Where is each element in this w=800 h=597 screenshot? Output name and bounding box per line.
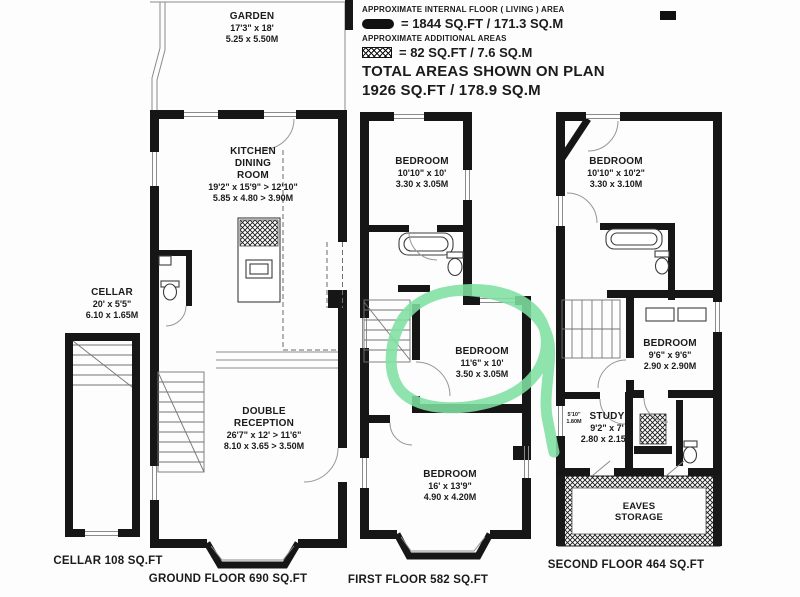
room-label-ff-bedroom-middle: BEDROOM 11'6" x 10' 3.50 x 3.05M	[412, 346, 552, 381]
legend-total-line2: 1926 SQ.FT / 178.9 SQ.M	[362, 82, 692, 101]
hatch-swatch-icon	[362, 47, 392, 58]
legend-total-line1: TOTAL AREAS SHOWN ON PLAN	[362, 63, 692, 82]
ceiling-height-marker: 5'10" 1.80M	[560, 412, 588, 426]
caption-second-floor: SECOND FLOOR 464 SQ.FT	[526, 559, 726, 571]
legend-additional-row: = 82 SQ.FT / 7.6 SQ.M	[362, 45, 692, 60]
legend-additional-label: APPROXIMATE ADDITIONAL AREAS	[362, 34, 692, 43]
room-label-garden: GARDEN 17'3" x 18' 5.25 x 5.50M	[182, 11, 322, 46]
solid-swatch-icon	[362, 19, 394, 29]
legend-internal-value: = 1844 SQ.FT / 171.3 SQ.M	[401, 16, 563, 31]
legend-additional-value: = 82 SQ.FT / 7.6 SQ.M	[399, 45, 532, 60]
room-label-eaves-storage: EAVES STORAGE	[579, 501, 699, 524]
room-label-ff-bedroom-rear: BEDROOM 10'10" x 10' 3.30 x 3.05M	[352, 156, 492, 191]
caption-first-floor: FIRST FLOOR 582 SQ.FT	[318, 574, 518, 586]
cellar-plan	[65, 333, 140, 537]
legend-internal-row: = 1844 SQ.FT / 171.3 SQ.M	[362, 16, 692, 31]
room-label-double-reception: DOUBLE RECEPTION 26'7" x 12' > 11'6" 8.1…	[189, 406, 339, 453]
legend-corner-mark	[660, 11, 676, 20]
legend: APPROXIMATE INTERNAL FLOOR ( LIVING ) AR…	[362, 5, 692, 101]
room-label-sf-bedroom-rear: BEDROOM 10'10" x 10'2" 3.30 x 3.10M	[546, 156, 686, 191]
legend-internal-label: APPROXIMATE INTERNAL FLOOR ( LIVING ) AR…	[362, 5, 692, 14]
caption-cellar: CELLAR 108 SQ.FT	[28, 555, 188, 567]
room-label-sf-bedroom-middle: BEDROOM 9'6" x 9'6" 2.90 x 2.90M	[600, 338, 740, 373]
floorplan-canvas: APPROXIMATE INTERNAL FLOOR ( LIVING ) AR…	[0, 0, 800, 597]
room-label-kitchen-dining: KITCHEN DINING ROOM 19'2" x 15'9" > 12'1…	[178, 146, 328, 205]
room-label-cellar: CELLAR 20' x 5'5" 6.10 x 1.65M	[52, 287, 172, 322]
room-label-ff-bedroom-front: BEDROOM 16' x 13'9" 4.90 x 4.20M	[380, 469, 520, 504]
caption-ground-floor: GROUND FLOOR 690 SQ.FT	[128, 573, 328, 585]
